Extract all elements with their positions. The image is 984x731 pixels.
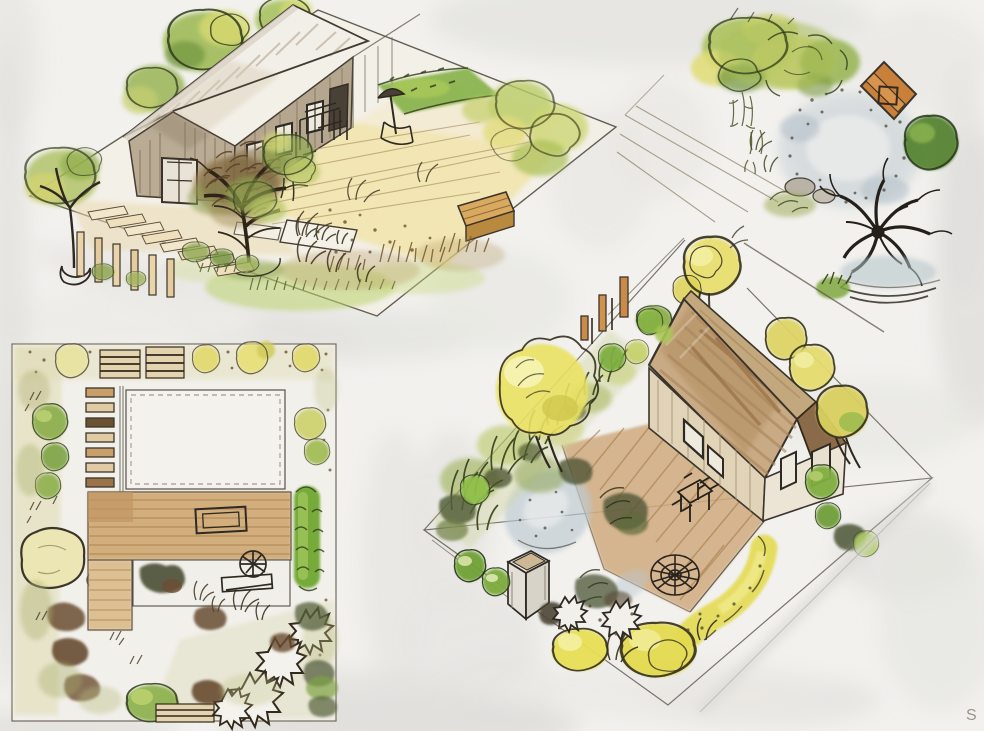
svg-text:S: S [966, 707, 977, 724]
